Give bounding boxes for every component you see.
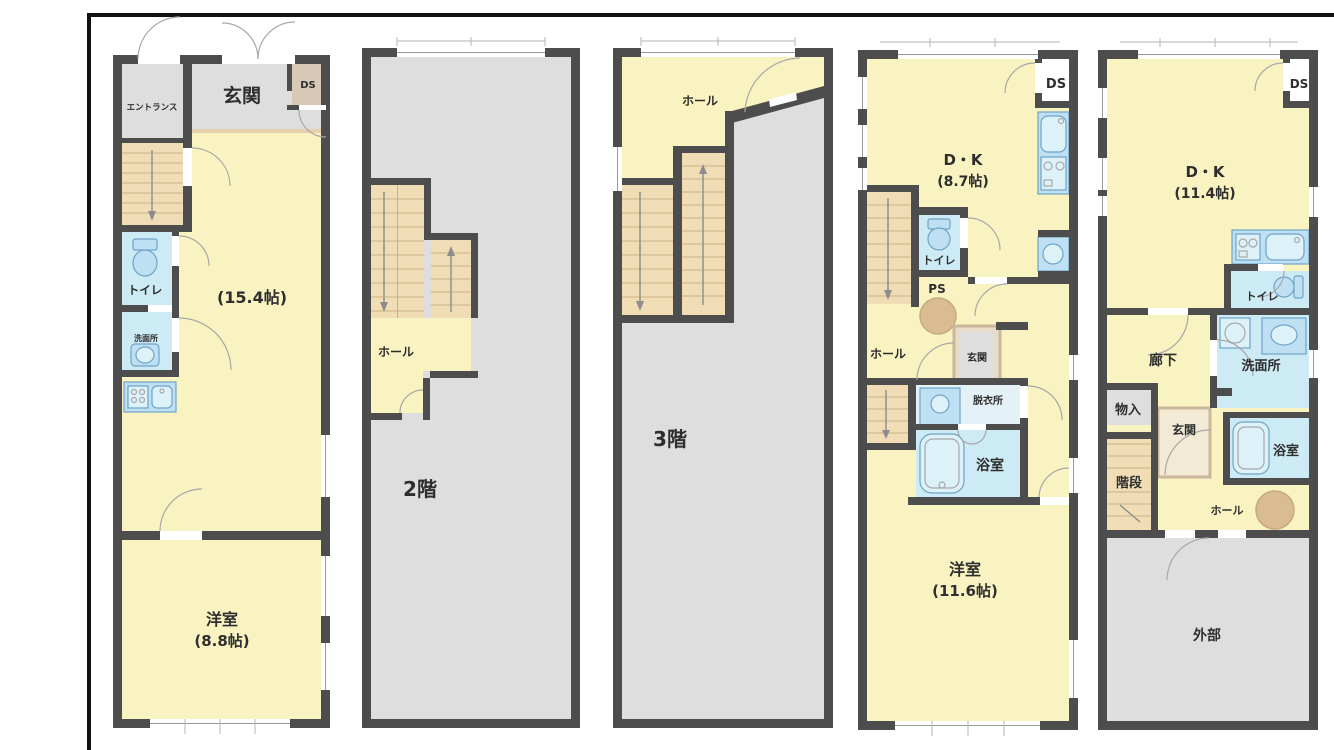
floor-plan-2f: ホール 2階 (362, 37, 580, 728)
label-storage-5: 物入 (1115, 402, 1141, 418)
label-dk-4: D・K (943, 151, 983, 169)
washbasin-4 (1038, 237, 1069, 271)
label-toilet-4: トイレ (923, 254, 956, 267)
label-ds-5: DS (1290, 77, 1309, 91)
toilet-tank-icon (133, 239, 157, 250)
entrance-door-arc (138, 17, 180, 59)
label-stairs-5: 階段 (1116, 475, 1142, 491)
toilet-bowl-icon (133, 250, 157, 276)
floor-plan-3f: ホール 3階 (613, 37, 833, 728)
label-toilet-1f: トイレ (128, 283, 163, 297)
label-dressing-4: 脱衣所 (973, 394, 1003, 407)
label-hall-5: ホール (1211, 504, 1244, 517)
genkan-5 (1158, 408, 1210, 477)
wall-room-divider-1f (122, 531, 321, 540)
label-bath-5: 浴室 (1273, 443, 1299, 459)
label-washroom-5: 洗面所 (1241, 358, 1280, 374)
dressing-room-4 (916, 385, 1020, 428)
label-entrance-1f: エントランス (127, 103, 178, 113)
genkan-door-left-arc (222, 23, 258, 59)
stairs-4-upper (867, 192, 911, 304)
floor-plan-5: D・K (11.4帖) DS トイレ 廊下 洗面所 物入 玄関 浴室 階段 ホー… (1098, 38, 1318, 730)
label-living-size-1f: (15.4帖) (217, 288, 287, 307)
label-dk-size-4: (8.7帖) (937, 173, 989, 190)
frame-left-line (87, 13, 91, 750)
label-floor-2f: 2階 (403, 477, 437, 501)
label-washroom-1f: 洗面所 (134, 333, 158, 343)
label-ds-1f: DS (300, 80, 316, 91)
label-bedroom-4: 洋室 (949, 560, 981, 579)
label-bath-4: 浴室 (976, 457, 1004, 474)
label-bedroom-1f: 洋室 (206, 610, 238, 629)
label-dk-5: D・K (1185, 163, 1225, 181)
kitchen-counter-1f (124, 382, 176, 412)
genkan-step-edge (192, 129, 326, 133)
toilet-tank-icon (1294, 276, 1303, 298)
stairs-3f-left (622, 185, 673, 315)
floorplan-svg: エントランス 玄関 DS トイレ 洗面所 (15.4帖) 洋室 (8.8帖) (0, 0, 1334, 750)
label-toilet-5: トイレ (1246, 290, 1279, 303)
frame-top-line (87, 13, 1334, 17)
label-bedroom-size-4: (11.6帖) (932, 582, 998, 600)
label-corridor-5: 廊下 (1149, 352, 1177, 369)
floor-plan-4: D・K (8.7帖) DS トイレ PS ホール 玄関 脱衣所 浴室 洋室 (1… (858, 38, 1078, 736)
stairs-4-lower (867, 385, 908, 443)
label-hall-4: ホール (870, 347, 906, 361)
floor-plan-1f: エントランス 玄関 DS トイレ 洗面所 (15.4帖) 洋室 (8.8帖) (113, 17, 330, 734)
label-dk-size-5: (11.4帖) (1174, 185, 1235, 202)
label-hall-2f: ホール (378, 345, 414, 359)
stove-icon (1041, 157, 1066, 190)
sink-icon (1041, 116, 1066, 152)
floorplan-image: エントランス 玄関 DS トイレ 洗面所 (15.4帖) 洋室 (8.8帖) (0, 0, 1334, 750)
stairs-2f-upper (371, 185, 424, 318)
label-exterior-5: 外部 (1193, 627, 1221, 644)
label-ps-4: PS (928, 282, 945, 296)
ps-column-circle (920, 298, 956, 334)
label-genkan-5: 玄関 (1172, 422, 1196, 437)
kitchen-counter-5 (1232, 230, 1309, 264)
hall-column-circle-5 (1256, 491, 1294, 529)
stairs-1f (122, 143, 183, 225)
stairs-3f-right (682, 153, 725, 315)
label-genkan-4: 玄関 (967, 351, 987, 364)
label-hall-3f: ホール (682, 94, 718, 108)
stairs-2f-lower (431, 240, 471, 318)
label-ds-4: DS (1046, 77, 1066, 92)
label-bedroom-size-1f: (8.8帖) (194, 632, 249, 650)
genkan-door-right-arc (258, 22, 295, 59)
label-floor-3f: 3階 (653, 427, 687, 451)
bathroom-4 (916, 430, 1020, 497)
room-entrance-1f (122, 64, 183, 139)
stove-icon (128, 386, 148, 408)
toilet-bowl-icon (928, 228, 950, 250)
label-genkan-1f: 玄関 (223, 84, 261, 107)
kitchen-counter-4 (1038, 112, 1069, 194)
